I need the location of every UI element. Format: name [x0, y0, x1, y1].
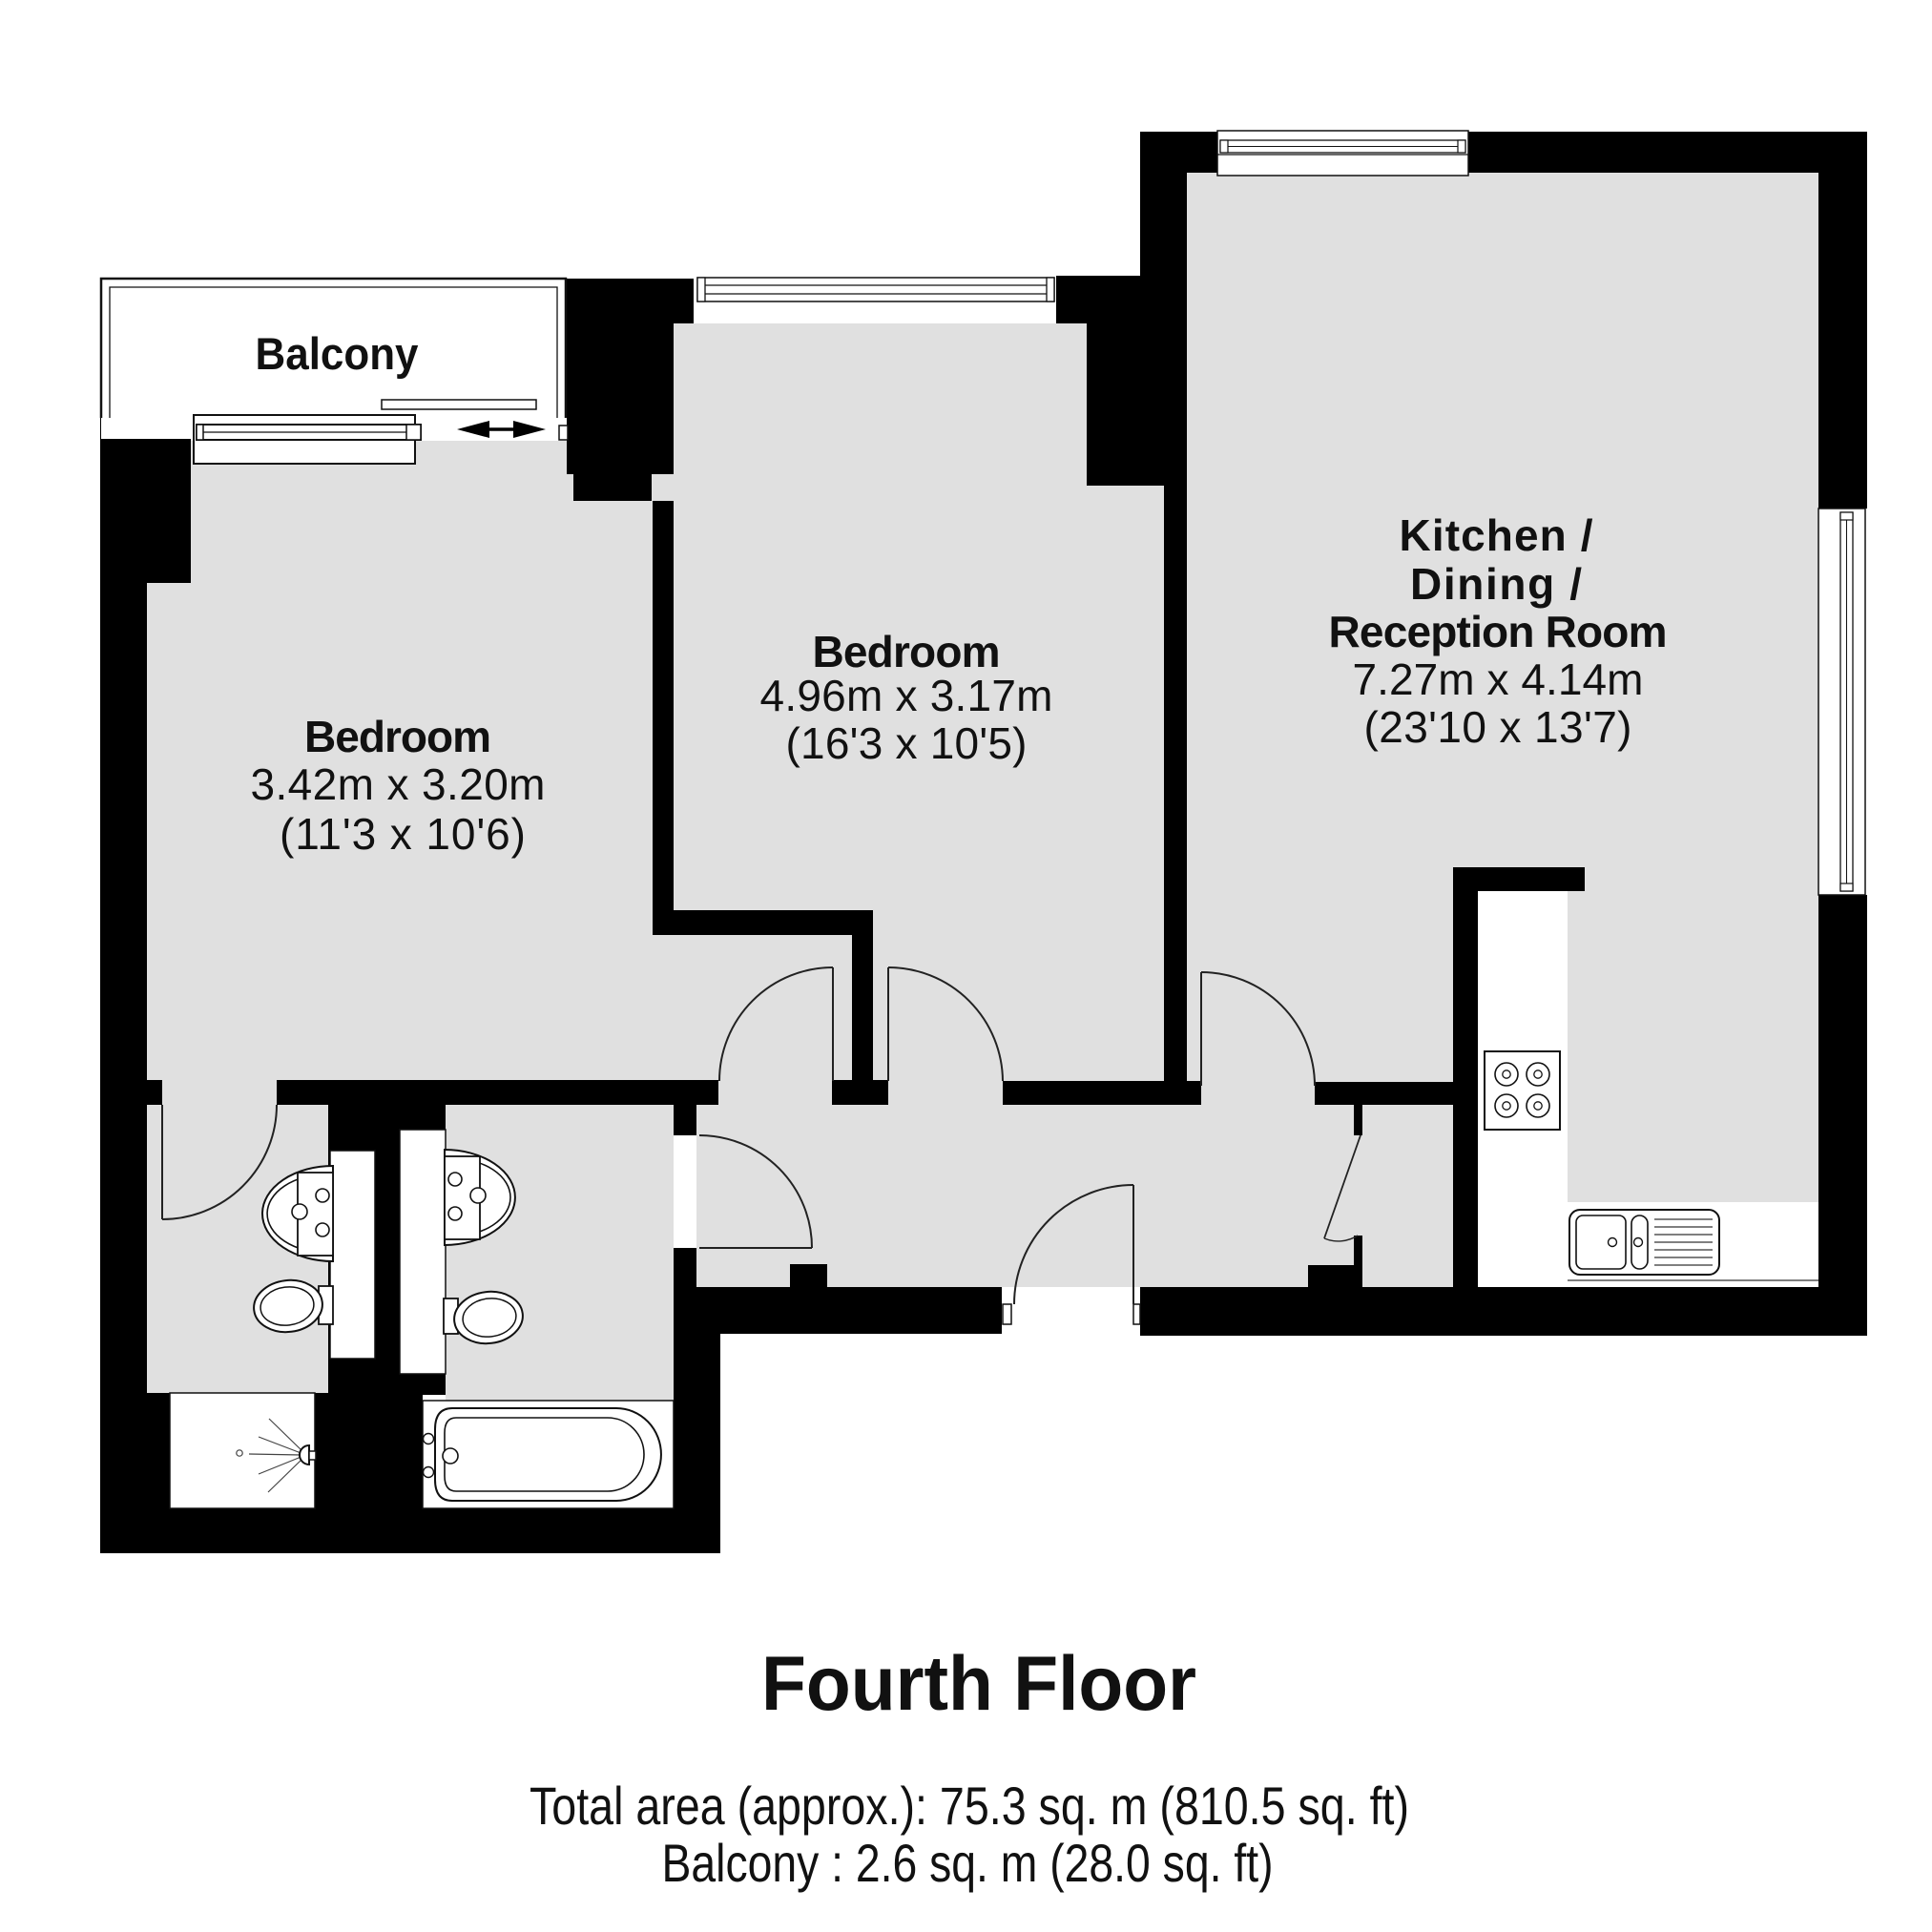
svg-text:3.42m x 3.20m: 3.42m x 3.20m — [251, 759, 546, 809]
svg-text:Reception Room: Reception Room — [1329, 607, 1668, 656]
svg-text:Dining /: Dining / — [1410, 559, 1582, 609]
svg-text:Total area (approx.): 75.3 sq.: Total area (approx.): 75.3 sq. m (810.5 … — [530, 1776, 1409, 1836]
svg-text:4.96m x 3.17m: 4.96m x 3.17m — [760, 671, 1053, 720]
svg-text:7.27m x 4.14m: 7.27m x 4.14m — [1353, 654, 1644, 704]
svg-text:(23'10 x 13'7): (23'10 x 13'7) — [1364, 702, 1632, 752]
svg-text:(11'3 x 10'6): (11'3 x 10'6) — [280, 809, 526, 859]
svg-text:(16'3 x 10'5): (16'3 x 10'5) — [786, 718, 1028, 768]
svg-text:Kitchen /: Kitchen / — [1400, 510, 1593, 560]
svg-text:Bedroom: Bedroom — [813, 627, 1001, 676]
svg-text:Bedroom: Bedroom — [304, 712, 491, 761]
svg-text:Balcony: Balcony — [256, 328, 419, 379]
svg-text:Fourth Floor: Fourth Floor — [761, 1641, 1196, 1727]
svg-text:Balcony : 2.6 sq. m (28.0 sq.: Balcony : 2.6 sq. m (28.0 sq. ft) — [662, 1833, 1274, 1893]
